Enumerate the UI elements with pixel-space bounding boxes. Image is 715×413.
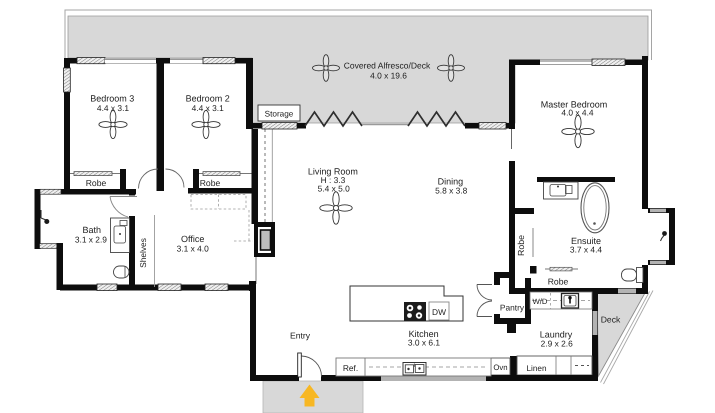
svg-text:5.8 x 3.8: 5.8 x 3.8: [435, 186, 467, 196]
svg-text:Pantry: Pantry: [500, 302, 525, 312]
svg-text:3.1 x 2.9: 3.1 x 2.9: [75, 235, 107, 245]
svg-text:2.9 x 2.6: 2.9 x 2.6: [541, 339, 573, 349]
svg-text:Ovn: Ovn: [493, 363, 507, 372]
svg-text:3.7 x 4.4: 3.7 x 4.4: [570, 244, 602, 254]
svg-text:Deck: Deck: [601, 315, 621, 325]
svg-text:Shelves: Shelves: [138, 238, 148, 268]
svg-text:DW: DW: [432, 307, 446, 317]
svg-text:Ref.: Ref.: [343, 363, 358, 373]
svg-text:Entry: Entry: [290, 331, 311, 341]
svg-text:5.4 x 5.0: 5.4 x 5.0: [318, 184, 350, 194]
svg-text:3.0 x 6.1: 3.0 x 6.1: [408, 338, 440, 348]
svg-text:3.1 x 4.0: 3.1 x 4.0: [177, 243, 209, 253]
svg-text:Robe: Robe: [516, 235, 526, 256]
svg-text:4.0 x 19.6: 4.0 x 19.6: [370, 71, 407, 81]
svg-text:Robe: Robe: [200, 178, 221, 188]
svg-text:Robe: Robe: [86, 178, 107, 188]
svg-text:Covered Alfresco/Deck: Covered Alfresco/Deck: [344, 60, 431, 70]
svg-text:W/D: W/D: [533, 297, 548, 306]
svg-text:Robe: Robe: [548, 276, 569, 286]
svg-text:Storage: Storage: [265, 110, 294, 119]
svg-text:Linen: Linen: [526, 364, 546, 373]
